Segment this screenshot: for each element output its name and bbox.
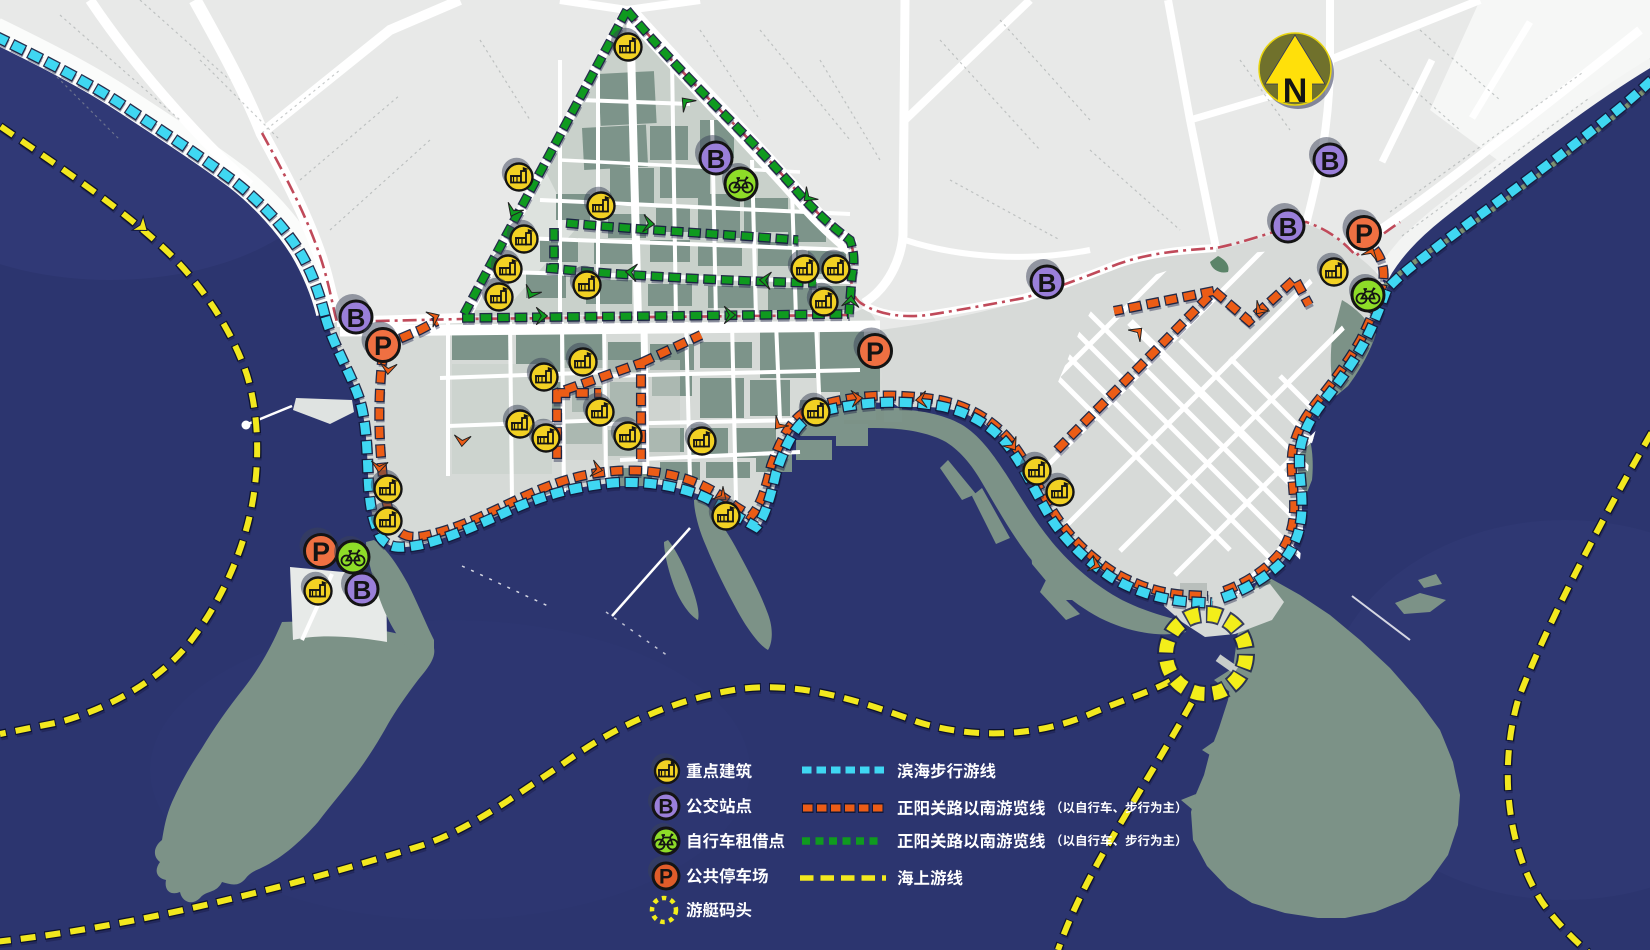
svg-text:N: N [1283, 72, 1308, 110]
svg-text:P: P [866, 337, 884, 367]
svg-text:P: P [1355, 219, 1373, 249]
svg-text:B: B [1279, 212, 1298, 242]
svg-text:B: B [1038, 268, 1057, 298]
svg-text:B: B [353, 575, 372, 605]
svg-text:P: P [659, 866, 673, 889]
svg-text:P: P [312, 537, 330, 567]
svg-text:B: B [347, 303, 366, 333]
svg-text:B: B [1321, 146, 1340, 176]
svg-text:P: P [374, 331, 392, 361]
svg-text:B: B [707, 144, 726, 174]
svg-text:B: B [658, 796, 673, 819]
